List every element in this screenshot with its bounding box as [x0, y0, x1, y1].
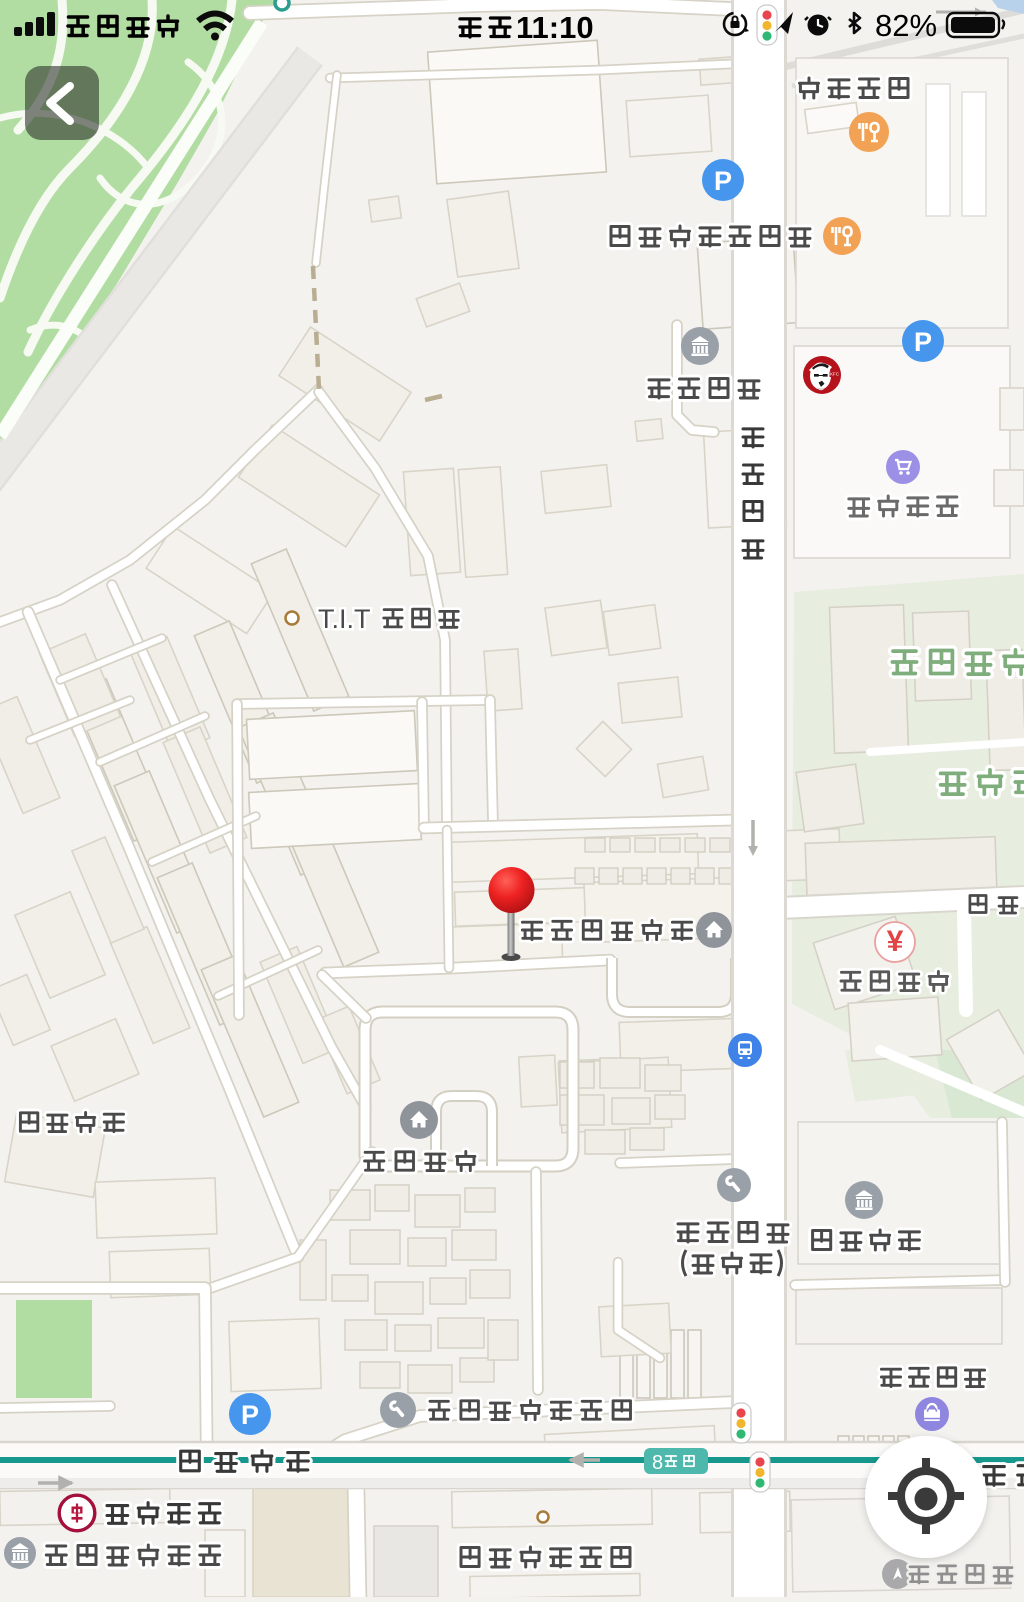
svg-text:8: 8 [652, 1452, 663, 1474]
svg-text:82%: 82% [875, 8, 937, 43]
svg-text:KFC: KFC [830, 372, 840, 377]
svg-text:11:10: 11:10 [516, 10, 594, 45]
svg-text:P: P [241, 1400, 259, 1430]
svg-text:T.I.T: T.I.T [318, 604, 371, 634]
svg-text:P: P [914, 327, 932, 357]
svg-text:P: P [714, 166, 732, 196]
svg-text:¥: ¥ [887, 925, 904, 958]
